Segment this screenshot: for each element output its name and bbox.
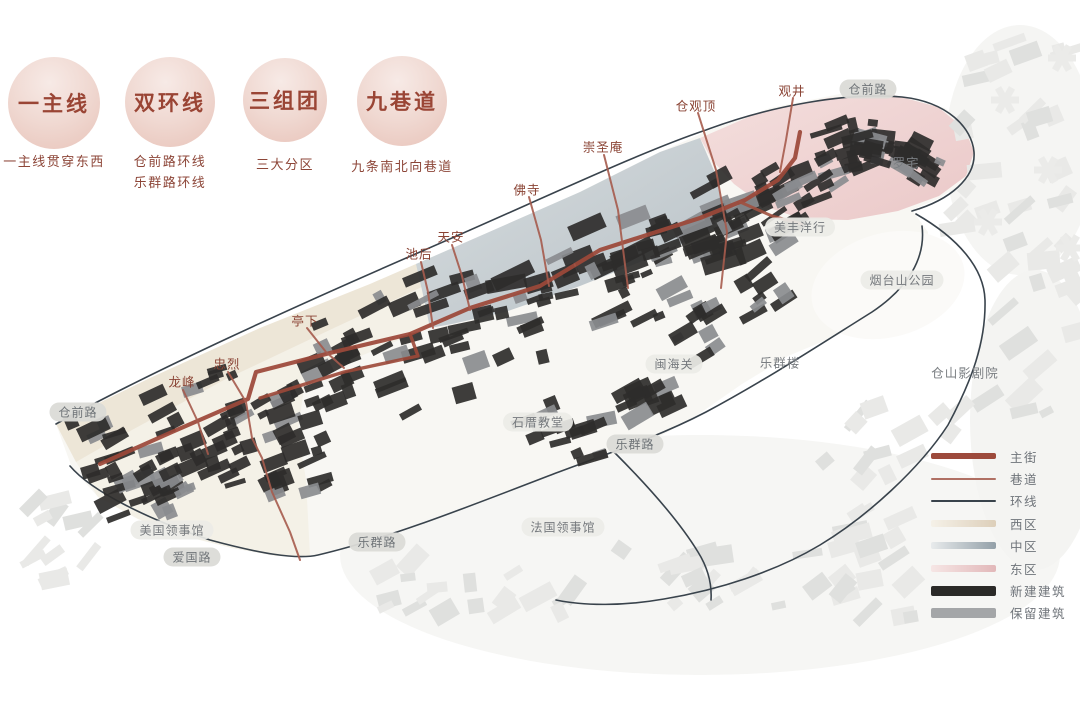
legend-swatch (931, 542, 996, 549)
map-label-place: 闽海关 (645, 355, 702, 374)
map-label-plain: 仓山影剧院 (931, 363, 999, 382)
concept-title: 九巷道 (366, 86, 438, 116)
legend-row: 保留建筑 (931, 602, 1066, 624)
legend-label: 保留建筑 (1010, 603, 1066, 622)
concept-circle-main-line: 一主线 (8, 57, 100, 149)
map-label-alley: 池后 (405, 244, 432, 263)
legend-label: 环线 (1010, 491, 1038, 510)
legend-swatch (931, 565, 996, 572)
legend-row: 主街 (931, 445, 1066, 467)
legend-row: 西区 (931, 512, 1066, 534)
map-label-place: 石厝教堂 (503, 413, 573, 432)
map-label-alley: 佛寺 (513, 180, 540, 199)
map-label-road: 乐群路 (606, 435, 663, 454)
map-label-alley: 仓观顶 (676, 96, 717, 115)
legend-row: 新建建筑 (931, 579, 1066, 601)
map-label-alley: 亭下 (291, 311, 318, 330)
legend-swatch (931, 500, 996, 502)
map-label-place: 美国领事馆 (130, 521, 213, 540)
legend-label: 巷道 (1010, 469, 1038, 488)
map-label-road: 仓前路 (49, 403, 106, 422)
legend-row: 环线 (931, 490, 1066, 512)
concept-desc: 九条南北向巷道 (312, 157, 492, 178)
legend-row: 巷道 (931, 467, 1066, 489)
map-label-plain: 乐群楼 (760, 353, 801, 372)
concept-title: 双环线 (134, 87, 206, 117)
map-label-alley: 天安 (437, 227, 464, 246)
map-label-alley: 崇圣庵 (583, 137, 624, 156)
concept-circle-three-clusters: 三组团 (243, 58, 327, 142)
legend-swatch (931, 520, 996, 527)
concept-circle-double-ring: 双环线 (125, 57, 215, 147)
map-label-road: 乐群路 (348, 533, 405, 552)
legend-label: 主街 (1010, 447, 1038, 466)
legend-label: 东区 (1010, 559, 1038, 578)
map-label-road: 爱国路 (163, 548, 220, 567)
map-label-place: 法国领事馆 (521, 518, 604, 537)
concept-title: 三组团 (249, 85, 321, 115)
legend-row: 东区 (931, 557, 1066, 579)
legend-row: 中区 (931, 535, 1066, 557)
legend-swatch (931, 608, 996, 618)
legend-label: 中区 (1010, 536, 1038, 555)
urban-design-analysis-map: 一主线 一主线贯穿东西 双环线 仓前路环线 乐群路环线 三组团 三大分区 九巷道… (0, 0, 1080, 719)
map-label-alley: 观井 (778, 81, 805, 100)
map-label-road: 仓前路 (839, 80, 896, 99)
map-label-place: 烟台山公园 (860, 271, 943, 290)
map-label-plain: 罗宅 (892, 153, 919, 172)
legend-swatch (931, 453, 996, 459)
legend-swatch (931, 478, 996, 480)
concept-circle-nine-alleys: 九巷道 (357, 56, 447, 146)
map-label-alley: 忠烈 (213, 354, 240, 373)
legend-swatch (931, 586, 996, 596)
map-label-place: 美丰洋行 (765, 218, 835, 237)
legend-label: 新建建筑 (1010, 581, 1066, 600)
legend-label: 西区 (1010, 514, 1038, 533)
concept-title: 一主线 (18, 88, 90, 118)
map-label-alley: 龙峰 (168, 372, 195, 391)
map-legend: 主街巷道环线西区中区东区新建建筑保留建筑 (931, 445, 1066, 624)
